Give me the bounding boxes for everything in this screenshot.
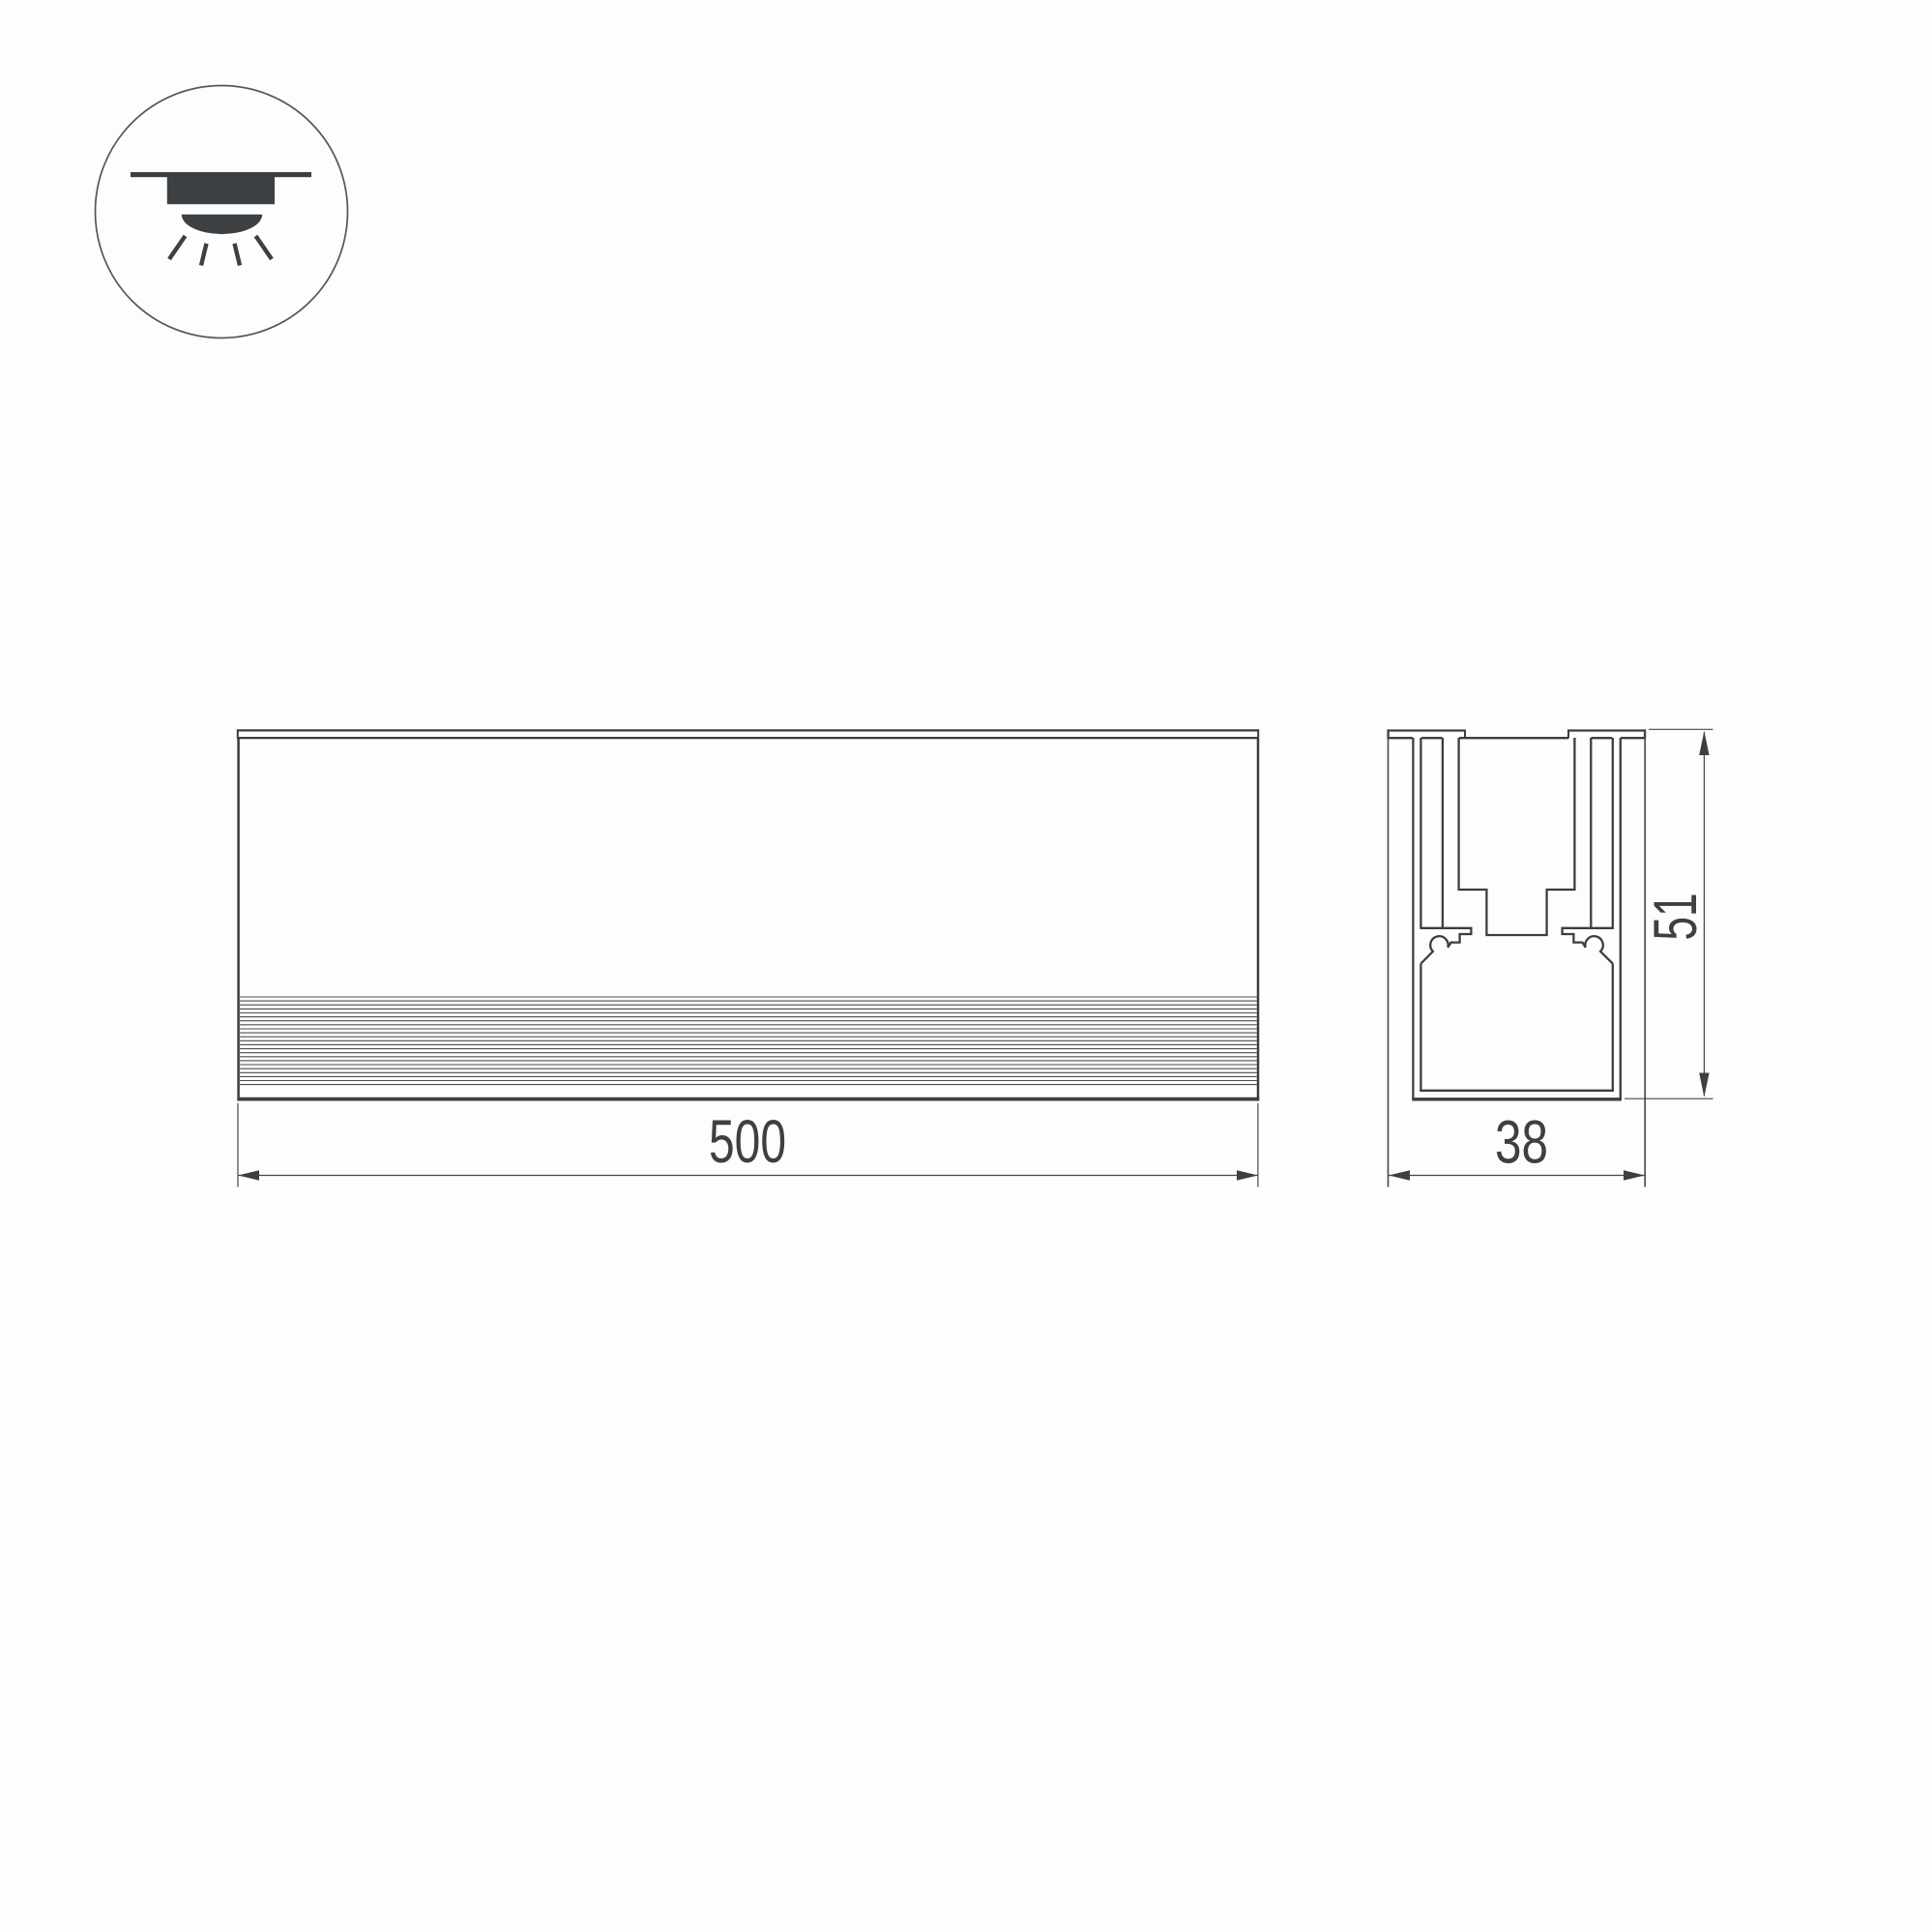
svg-text:500: 500 <box>709 1108 786 1176</box>
svg-text:38: 38 <box>1495 1109 1548 1177</box>
svg-text:51: 51 <box>1642 893 1710 941</box>
